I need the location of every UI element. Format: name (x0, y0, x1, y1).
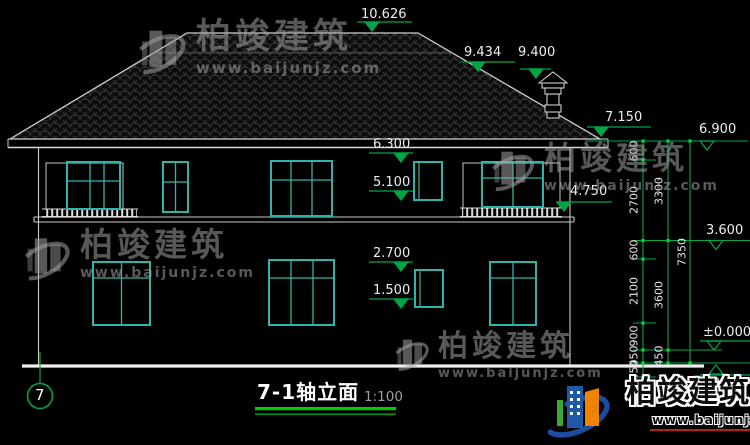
dim-label: 450 (654, 346, 665, 367)
window-2f-balcony-right (482, 162, 543, 207)
dim-label: 600 (629, 240, 640, 261)
brand-name: 柏竣建筑 (626, 378, 750, 408)
brand-underline (650, 429, 750, 431)
window-2f-triple (271, 161, 332, 216)
drawing-title: 7-1轴立面 (257, 381, 359, 403)
window-2f-balcony-left (67, 162, 120, 209)
level-label: 3.600 (706, 224, 743, 237)
level-label: 10.626 (361, 8, 407, 21)
level-label: ±0.000 (703, 326, 750, 339)
level-label: 5.100 (373, 176, 410, 189)
level-label: 9.400 (518, 46, 555, 59)
window-2f-narrow (163, 162, 188, 212)
window-2f-small (414, 162, 442, 200)
window-1f-small (415, 270, 443, 307)
drawing-scale: 1:100 (364, 389, 403, 405)
level-label: 2.700 (373, 247, 410, 260)
axis-bubble-label: 7 (35, 388, 45, 403)
title-underline (255, 407, 396, 415)
level-label: 6.900 (699, 123, 736, 136)
dim-label: 3300 (654, 177, 665, 205)
level-label: 4.750 (570, 185, 607, 198)
dim-label: 7350 (677, 238, 688, 266)
dim-label: 2700 (629, 186, 640, 214)
level-label: 9.434 (464, 46, 501, 59)
windows (67, 161, 543, 325)
brand-url: www.baijunjz.com (652, 412, 750, 427)
brand-logo-icon (536, 378, 622, 442)
dim-label: 3600 (654, 281, 665, 309)
window-1f-triple (269, 260, 334, 325)
window-1f-left (93, 262, 150, 325)
level-label: 1.500 (373, 284, 410, 297)
window-1f-right (490, 262, 536, 325)
level-label: 7.150 (605, 111, 642, 124)
level-label: 6.300 (373, 138, 410, 151)
cad-elevation-canvas[interactable]: 10.626 9.434 9.400 7.150 6.900 6.300 5.1… (0, 0, 750, 445)
dim-label: 600 (629, 141, 640, 162)
brand-logo: 柏竣建筑 www.baijunjz.com (536, 378, 750, 442)
dim-label: 2100 (629, 277, 640, 305)
dim-label: 900 (629, 326, 640, 347)
